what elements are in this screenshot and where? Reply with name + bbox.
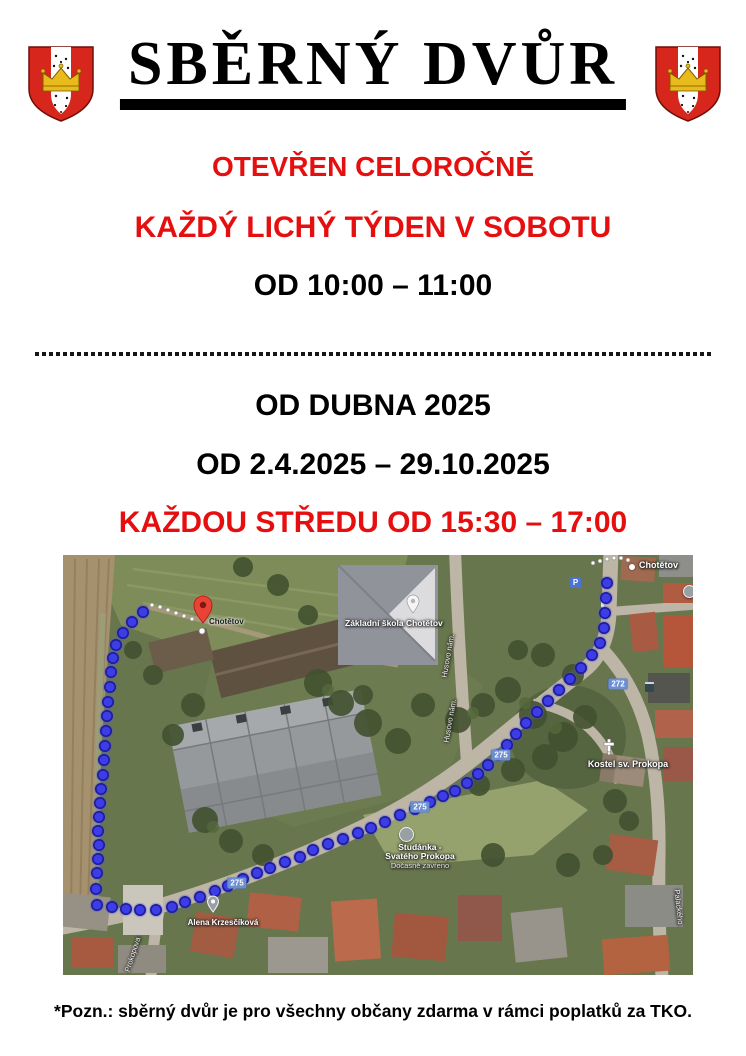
route-dot xyxy=(105,682,115,692)
from-april-text: OD DUBNA 2025 xyxy=(0,389,746,423)
route-dot xyxy=(323,839,333,849)
edge-poi-icon xyxy=(683,585,693,598)
school-label: Základní škola Chotětov xyxy=(345,618,437,628)
route-dot xyxy=(295,852,305,862)
route-dot xyxy=(543,696,553,706)
trail-dash xyxy=(158,605,162,609)
route-dot xyxy=(252,868,262,878)
route-dot xyxy=(107,902,117,912)
route-dot xyxy=(103,697,113,707)
route-dot xyxy=(121,904,131,914)
pin-place-label: Chotětov xyxy=(209,617,244,626)
route-dot xyxy=(554,685,564,695)
route-dot xyxy=(138,607,148,617)
page-title: SBĚRNÝ DVŮR xyxy=(120,30,626,110)
route-dot xyxy=(599,623,609,633)
town-label: Chotětov xyxy=(639,560,678,570)
route-shield: 275 xyxy=(227,878,246,889)
person-poi-label: Alena Krzesčíková xyxy=(175,918,271,927)
route-dot xyxy=(98,770,108,780)
well-label-line2: Svatého Prokopa xyxy=(380,851,460,861)
route-dot xyxy=(94,812,104,822)
poster: SBĚRNÝ DVŮR OTEVŘEN CELOROČNĚ KAŽDÝ LICH… xyxy=(0,0,746,1056)
route-dot xyxy=(587,650,597,660)
route-dot xyxy=(576,663,586,673)
odd-week-saturday-text: KAŽDÝ LICHÝ TÝDEN V SOBOTU xyxy=(0,211,746,245)
route-dot xyxy=(462,778,472,788)
open-year-round-text: OTEVŘEN CELOROČNĚ xyxy=(0,151,746,183)
trail-dash xyxy=(591,561,595,565)
trail-dash xyxy=(598,559,602,563)
church-label: Kostel sv. Prokopa xyxy=(582,759,674,769)
route-dot xyxy=(92,900,102,910)
trail-dash xyxy=(612,556,616,560)
coat-of-arms-right-icon xyxy=(650,44,726,124)
route-dot xyxy=(532,707,542,717)
route-dot xyxy=(101,726,111,736)
route-dot xyxy=(395,810,405,820)
route-dot xyxy=(118,628,128,638)
route-dot xyxy=(195,892,205,902)
well-status-label: Dočasně zavřeno xyxy=(380,861,460,870)
route-dot xyxy=(135,905,145,915)
route-dot xyxy=(265,863,275,873)
route-dot xyxy=(473,769,483,779)
saturday-hours-text: OD 10:00 – 11:00 xyxy=(0,269,746,303)
town-dot-icon xyxy=(629,564,635,570)
well-poi-icon xyxy=(399,827,414,842)
route-dot xyxy=(95,798,105,808)
route-dot xyxy=(308,845,318,855)
route-dot xyxy=(99,755,109,765)
route-shield: 275 xyxy=(410,802,429,813)
route-dot xyxy=(180,897,190,907)
route-dot xyxy=(483,760,493,770)
route-dot xyxy=(210,886,220,896)
route-dot xyxy=(565,674,575,684)
route-dot xyxy=(96,784,106,794)
trail-dash xyxy=(182,614,186,618)
route-dot xyxy=(450,786,460,796)
route-dot xyxy=(91,884,101,894)
date-range-text: OD 2.4.2025 – 29.10.2025 xyxy=(0,448,746,482)
trail-dash xyxy=(150,603,154,607)
route-dot xyxy=(353,828,363,838)
route-dot xyxy=(108,653,118,663)
route-dot xyxy=(601,593,611,603)
route-dot xyxy=(100,741,110,751)
parking-icon: P xyxy=(570,577,581,588)
trail-dash xyxy=(605,557,609,561)
coat-of-arms-left-icon xyxy=(23,44,99,124)
route-dot xyxy=(106,667,116,677)
bus-stop-icon xyxy=(645,682,654,692)
route-dot xyxy=(111,640,121,650)
dotted-divider xyxy=(35,352,713,356)
route-dot xyxy=(93,826,103,836)
route-dot xyxy=(511,729,521,739)
trail-dash xyxy=(619,556,623,560)
route-dot xyxy=(438,791,448,801)
route-dot xyxy=(93,854,103,864)
route-dot xyxy=(102,711,112,721)
trail-dash xyxy=(166,608,170,612)
route-dot xyxy=(595,638,605,648)
route-shield: 272 xyxy=(608,679,627,690)
footnote: *Pozn.: sběrný dvůr je pro všechny občan… xyxy=(0,1001,746,1022)
route-dot xyxy=(366,823,376,833)
route-dot xyxy=(602,578,612,588)
route-shield: 275 xyxy=(491,750,510,761)
map-satellite: Chotětov Chotětov Základní škola Chotěto… xyxy=(63,555,693,975)
route-dot xyxy=(600,608,610,618)
trail-dash xyxy=(626,558,630,562)
route-dot xyxy=(167,902,177,912)
route-dot xyxy=(280,857,290,867)
route-dot xyxy=(521,718,531,728)
route-dot xyxy=(151,905,161,915)
wednesday-hours-text: KAŽDOU STŘEDU OD 15:30 – 17:00 xyxy=(0,506,746,540)
route-dot xyxy=(338,834,348,844)
route-dot xyxy=(92,868,102,878)
route-dot xyxy=(127,617,137,627)
trail-dash xyxy=(174,611,178,615)
trail-dash xyxy=(190,617,194,621)
route-dot xyxy=(380,817,390,827)
route-dot xyxy=(94,840,104,850)
